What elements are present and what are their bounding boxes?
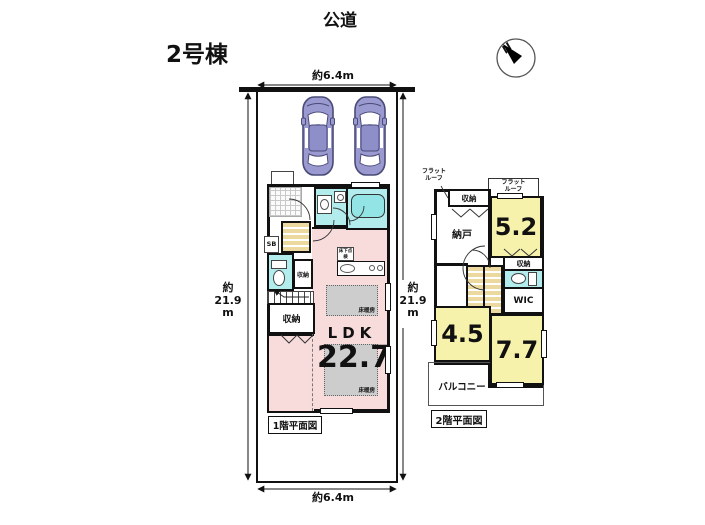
toilet-bowl-icon (273, 270, 285, 286)
floor-heating-label: 床暖房 (358, 386, 375, 394)
stove-burner-icon (377, 265, 383, 271)
window (385, 346, 391, 374)
floor1-caption: 1階平面図 (268, 416, 322, 434)
floor-heating-pad: 床暖房 (326, 285, 378, 316)
window (496, 382, 524, 388)
car-icon (353, 94, 387, 178)
room-5-2: 5.2 (490, 196, 542, 258)
washing-machine-drum (337, 194, 344, 201)
room-4-5: 4.5 (434, 306, 491, 362)
dim-bottom-width: 約6.4m (298, 492, 368, 505)
closet-1f: 収納 (268, 303, 315, 334)
toilet-tank-icon (271, 260, 287, 269)
toilet-bowl-icon (511, 273, 526, 284)
window (320, 408, 353, 414)
bathtub-icon (351, 194, 385, 218)
building-title: 2号棟 (152, 42, 242, 68)
dim-left-height: 約 21.9 m (209, 282, 247, 320)
shoe-box: SB (264, 236, 279, 253)
washing-machine-icon (334, 191, 346, 203)
road-label: 公道 (305, 12, 375, 32)
flat-roof-label: フラット ルーフ (416, 169, 452, 183)
window (541, 330, 547, 358)
window (431, 214, 437, 240)
compass-icon: N (494, 36, 538, 80)
stove-burner-icon (369, 265, 375, 271)
floor-plan-sheet: 2号棟 公道 N 約6.4m 約6.4m 約 21.9 m 約 21.9 m (0, 0, 705, 525)
wall (434, 263, 468, 266)
walk-in-closet: WIC (503, 287, 544, 314)
flat-roof-label: フラット ルーフ (490, 180, 537, 194)
entrance-tile-area (269, 187, 302, 217)
storage-2f-top: 収納 (448, 189, 490, 207)
window (431, 320, 437, 346)
dim-top-width: 約6.4m (298, 70, 368, 83)
stairs-1f (281, 221, 311, 253)
floor-heating-label: 床暖房 (358, 306, 375, 314)
ldk-divider-dashed (312, 334, 314, 411)
washbasin-bowl (320, 199, 329, 210)
room-ldk-annex (269, 334, 314, 411)
room-7-7: 7.7 (490, 314, 544, 385)
floor2-caption: 2階平面図 (431, 410, 487, 428)
window (351, 182, 380, 188)
window (497, 193, 523, 199)
storeroom-label: 納戸 (445, 230, 479, 242)
toilet-side-storage: 収納 (293, 259, 313, 289)
window (385, 283, 391, 311)
balcony-label: バルコニー (436, 383, 488, 394)
toilet-tank-icon (528, 272, 537, 286)
ldk-area-value: 22.7 (317, 341, 391, 376)
kitchen-sink-icon (340, 264, 355, 273)
underfloor-access-label: 床下点検 (337, 247, 354, 261)
dim-right-height: 約 21.9 m (394, 282, 432, 320)
washbasin-icon (317, 195, 332, 214)
car-icon (301, 94, 335, 178)
entrance-porch (271, 171, 294, 185)
